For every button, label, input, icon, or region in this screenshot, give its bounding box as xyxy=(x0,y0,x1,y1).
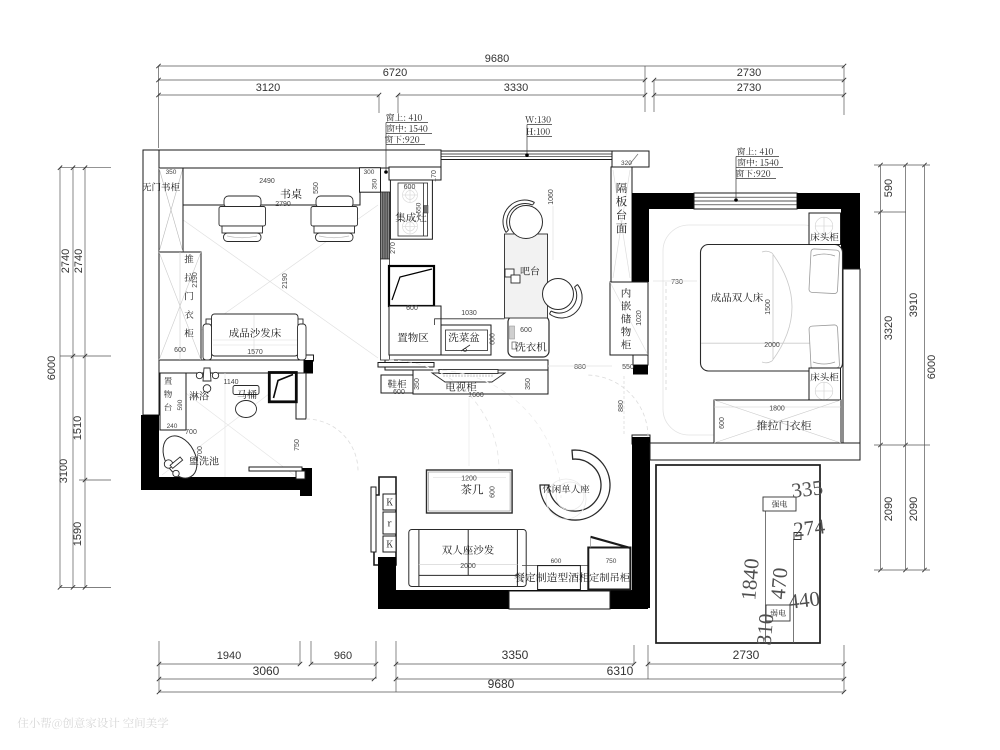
svg-text:9680: 9680 xyxy=(485,53,509,65)
svg-text:2190: 2190 xyxy=(192,272,199,288)
svg-text:335: 335 xyxy=(790,475,824,503)
svg-text:2730: 2730 xyxy=(737,67,761,79)
svg-text:2000: 2000 xyxy=(460,563,476,570)
svg-text:3330: 3330 xyxy=(504,82,528,94)
svg-text:1060: 1060 xyxy=(548,189,555,205)
svg-text:6310: 6310 xyxy=(607,664,634,678)
svg-text:310: 310 xyxy=(752,613,779,646)
svg-text:600: 600 xyxy=(719,417,726,429)
svg-text:600: 600 xyxy=(520,327,532,334)
svg-text:550: 550 xyxy=(313,182,320,194)
svg-text:750: 750 xyxy=(606,558,617,565)
svg-text:590: 590 xyxy=(177,399,184,410)
svg-text:1200: 1200 xyxy=(461,476,477,483)
svg-text:2730: 2730 xyxy=(733,648,760,662)
svg-text:2490: 2490 xyxy=(259,178,275,185)
svg-text:1140: 1140 xyxy=(223,379,238,386)
svg-text:1570: 1570 xyxy=(247,349,263,356)
svg-text:550: 550 xyxy=(622,364,634,371)
svg-text:1500: 1500 xyxy=(765,299,772,315)
svg-text:1510: 1510 xyxy=(72,416,84,440)
svg-text:6000: 6000 xyxy=(46,356,58,380)
svg-text:730: 730 xyxy=(671,279,683,286)
svg-text:1840: 1840 xyxy=(736,557,764,601)
svg-text:960: 960 xyxy=(334,650,352,662)
svg-text:1590: 1590 xyxy=(72,522,84,546)
svg-text:440: 440 xyxy=(787,586,821,614)
svg-text:600: 600 xyxy=(393,389,405,396)
svg-text:3350: 3350 xyxy=(502,648,529,662)
svg-text:3060: 3060 xyxy=(253,664,280,678)
svg-text:700: 700 xyxy=(185,429,197,436)
svg-text:1600: 1600 xyxy=(468,392,484,399)
svg-text:350: 350 xyxy=(372,178,379,189)
svg-text:3320: 3320 xyxy=(883,316,895,340)
svg-text:600: 600 xyxy=(174,347,186,354)
svg-text:2090: 2090 xyxy=(883,497,895,521)
svg-text:3100: 3100 xyxy=(58,459,70,483)
svg-text:600: 600 xyxy=(551,558,562,565)
svg-text:274: 274 xyxy=(792,514,827,542)
svg-text:350: 350 xyxy=(414,378,421,390)
svg-text:1940: 1940 xyxy=(217,650,241,662)
svg-text:550: 550 xyxy=(416,202,423,213)
svg-text:1030: 1030 xyxy=(461,310,477,317)
svg-text:880: 880 xyxy=(618,400,625,412)
svg-text:1800: 1800 xyxy=(769,406,785,413)
svg-text:700: 700 xyxy=(197,446,204,458)
svg-text:9680: 9680 xyxy=(488,677,515,691)
svg-text:320: 320 xyxy=(621,160,632,167)
svg-text:2000: 2000 xyxy=(764,342,780,349)
svg-text:2740: 2740 xyxy=(73,249,85,273)
svg-text:300: 300 xyxy=(364,169,375,176)
svg-text:600: 600 xyxy=(404,184,416,191)
svg-text:3120: 3120 xyxy=(256,82,280,94)
svg-text:2790: 2790 xyxy=(275,201,291,208)
svg-text:240: 240 xyxy=(167,423,178,430)
svg-text:6000: 6000 xyxy=(926,355,938,379)
svg-text:270: 270 xyxy=(390,242,397,254)
svg-text:350: 350 xyxy=(166,169,177,176)
svg-text:350: 350 xyxy=(525,378,532,390)
svg-text:600: 600 xyxy=(490,333,497,345)
svg-text:6720: 6720 xyxy=(383,67,407,79)
svg-text:2740: 2740 xyxy=(60,249,72,273)
svg-text:880: 880 xyxy=(574,364,586,371)
svg-text:1020: 1020 xyxy=(636,310,643,326)
svg-text:2730: 2730 xyxy=(737,82,761,94)
svg-text:590: 590 xyxy=(883,179,895,197)
svg-text:3910: 3910 xyxy=(908,293,920,317)
svg-text:750: 750 xyxy=(294,439,301,451)
svg-text:2090: 2090 xyxy=(908,497,920,521)
svg-text:600: 600 xyxy=(490,486,497,498)
svg-text:600: 600 xyxy=(406,305,418,312)
svg-text:2190: 2190 xyxy=(282,273,289,289)
